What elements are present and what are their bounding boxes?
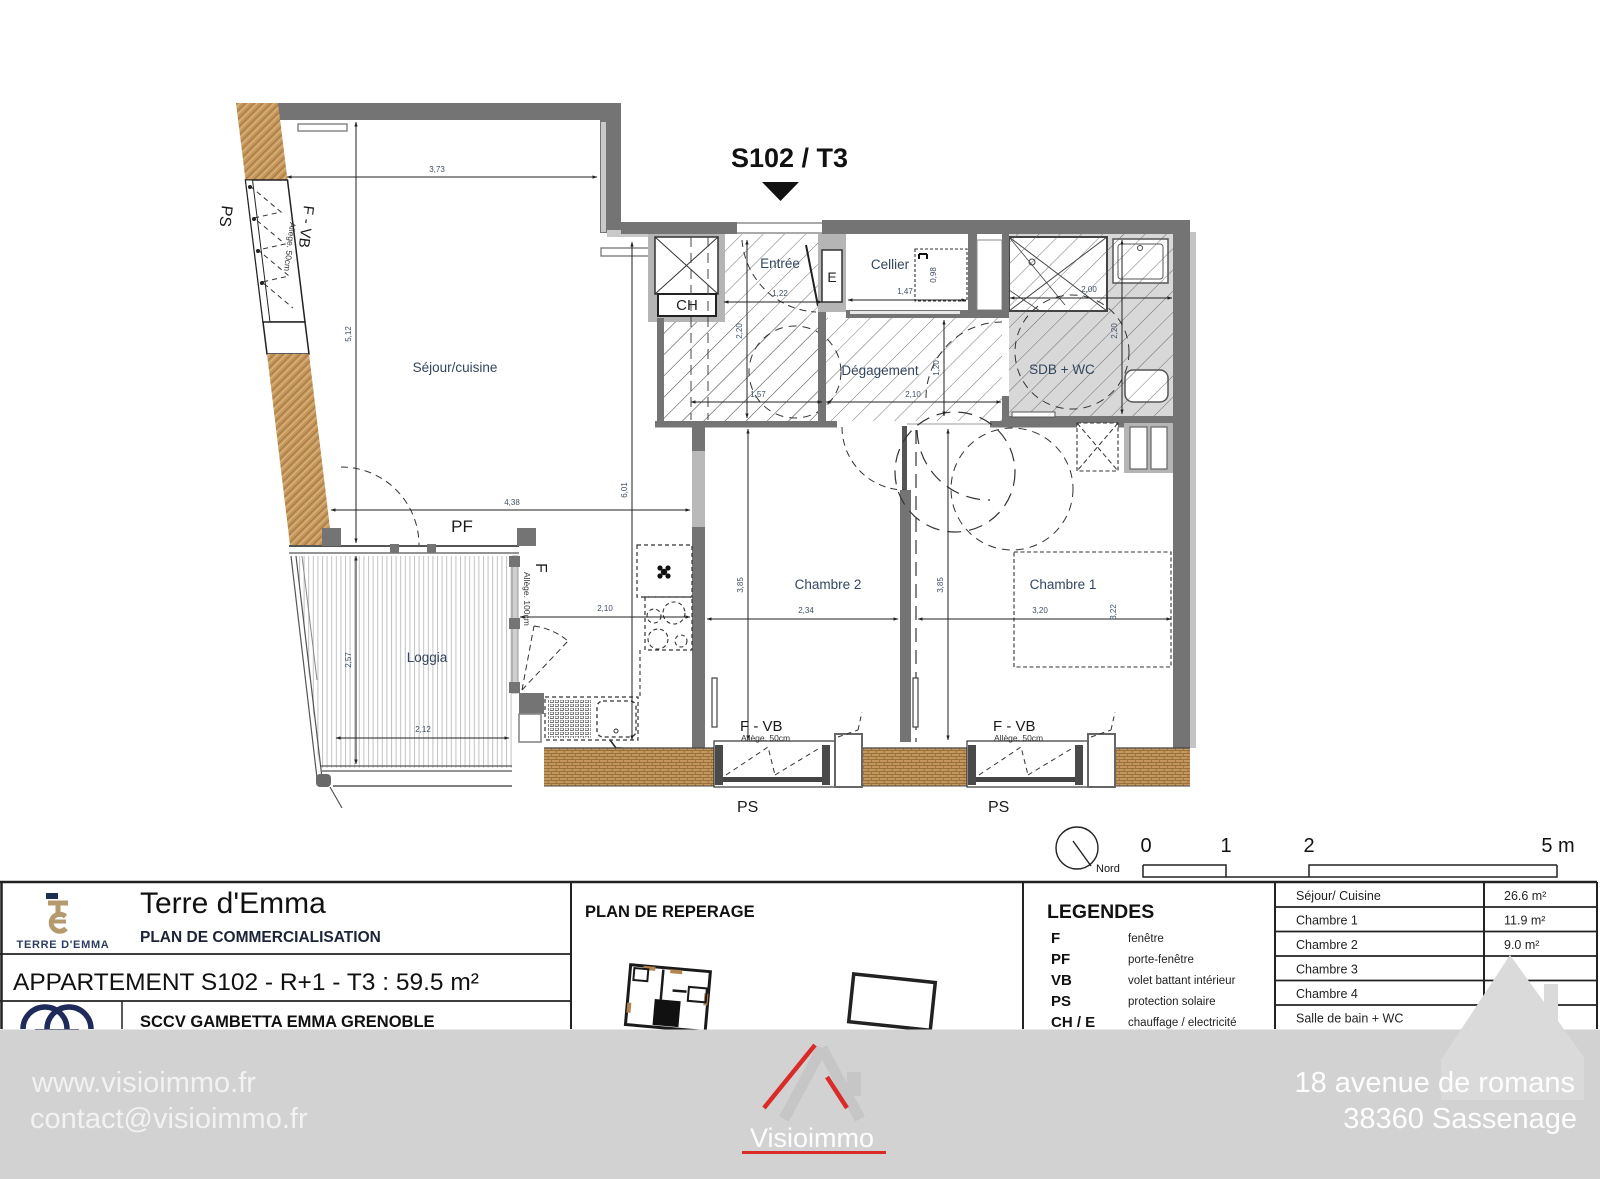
svg-text:2,00: 2,00 <box>1081 285 1097 294</box>
svg-text:Nord: Nord <box>1096 863 1120 875</box>
svg-text:1,20: 1,20 <box>932 360 941 376</box>
svg-text:Chambre 2: Chambre 2 <box>795 577 862 592</box>
svg-text:volet battant intérieur: volet battant intérieur <box>1128 975 1236 987</box>
svg-text:2,20: 2,20 <box>1110 323 1119 339</box>
svg-text:VB: VB <box>1051 972 1072 989</box>
svg-text:1,22: 1,22 <box>772 289 788 298</box>
svg-text:3,73: 3,73 <box>429 165 445 174</box>
svg-text:Terre d'Emma: Terre d'Emma <box>140 887 326 920</box>
svg-text:F: F <box>532 563 549 573</box>
svg-text:PLAN DE REPERAGE: PLAN DE REPERAGE <box>585 903 755 921</box>
svg-text:PF: PF <box>451 517 473 536</box>
svg-text:contact@visioimmo.fr: contact@visioimmo.fr <box>30 1103 308 1135</box>
svg-text:S102 / T3: S102 / T3 <box>731 143 848 173</box>
svg-text:Salle de bain + WC: Salle de bain + WC <box>1296 1012 1403 1026</box>
svg-text:0: 0 <box>1140 835 1151 857</box>
svg-text:1,57: 1,57 <box>750 390 766 399</box>
svg-text:PLAN DE COMMERCIALISATION: PLAN DE COMMERCIALISATION <box>140 929 381 946</box>
svg-text:Séjour/cuisine: Séjour/cuisine <box>413 360 498 375</box>
svg-text:Séjour/ Cuisine: Séjour/ Cuisine <box>1296 889 1381 903</box>
svg-text:Chambre 4: Chambre 4 <box>1296 987 1358 1001</box>
svg-text:fenêtre: fenêtre <box>1128 933 1164 945</box>
svg-text:F: F <box>1051 930 1060 947</box>
svg-text:PF: PF <box>1051 951 1070 968</box>
svg-text:CH / E: CH / E <box>1051 1014 1095 1031</box>
svg-text:5,12: 5,12 <box>344 326 353 342</box>
svg-text:Chambre 1: Chambre 1 <box>1296 914 1358 928</box>
svg-text:9.0 m²: 9.0 m² <box>1504 938 1539 952</box>
svg-text:1,47: 1,47 <box>897 287 913 296</box>
svg-text:0,98: 0,98 <box>929 267 938 283</box>
svg-text:2,10: 2,10 <box>905 390 921 399</box>
svg-text:2,57: 2,57 <box>344 652 353 668</box>
svg-text:PS: PS <box>1051 993 1071 1010</box>
svg-text:Allège. 50cm: Allège. 50cm <box>741 733 790 743</box>
svg-text:Chambre 2: Chambre 2 <box>1296 938 1358 952</box>
svg-text:1: 1 <box>1220 835 1231 857</box>
svg-text:PS: PS <box>215 205 234 228</box>
svg-text:3,20: 3,20 <box>1032 606 1048 615</box>
svg-text:Chambre 1: Chambre 1 <box>1030 577 1097 592</box>
svg-text:Visioimmo: Visioimmo <box>750 1123 874 1153</box>
svg-text:PS: PS <box>988 799 1009 816</box>
svg-text:E: E <box>827 269 836 285</box>
svg-text:Loggia: Loggia <box>407 650 448 665</box>
svg-text:porte-fenêtre: porte-fenêtre <box>1128 954 1194 966</box>
svg-text:5 m: 5 m <box>1541 835 1574 857</box>
svg-text:2,12: 2,12 <box>415 725 431 734</box>
svg-text:4,38: 4,38 <box>504 498 520 507</box>
svg-text:2,10: 2,10 <box>597 604 613 613</box>
svg-text:PS: PS <box>737 799 758 816</box>
svg-text:11.9 m²: 11.9 m² <box>1504 914 1545 928</box>
svg-text:26.6 m²: 26.6 m² <box>1504 889 1546 903</box>
svg-text:chauffage / electricité: chauffage / electricité <box>1128 1017 1236 1029</box>
svg-text:Chambre 3: Chambre 3 <box>1296 963 1358 977</box>
svg-text:CH: CH <box>676 297 698 314</box>
svg-text:2,20: 2,20 <box>735 323 744 339</box>
svg-text:3,22: 3,22 <box>1109 604 1118 620</box>
svg-text:3,85: 3,85 <box>936 577 945 593</box>
svg-text:Allège. 50cm: Allège. 50cm <box>994 733 1043 743</box>
svg-text:Dégagement: Dégagement <box>841 363 919 378</box>
svg-text:6,01: 6,01 <box>620 482 629 498</box>
svg-text:SDB + WC: SDB + WC <box>1029 362 1095 377</box>
svg-text:38360 Sassenage: 38360 Sassenage <box>1343 1103 1577 1135</box>
svg-text:3,85: 3,85 <box>736 577 745 593</box>
svg-text:2,34: 2,34 <box>798 606 814 615</box>
svg-text:APPARTEMENT S102 - R+1 - T3 :: APPARTEMENT S102 - R+1 - T3 : 59.5 m² <box>13 969 479 996</box>
svg-text:LEGENDES: LEGENDES <box>1047 901 1154 923</box>
svg-text:Entrée: Entrée <box>760 256 800 271</box>
svg-text:www.visioimmo.fr: www.visioimmo.fr <box>31 1067 256 1099</box>
svg-text:Cellier: Cellier <box>871 257 910 272</box>
svg-text:Allège. 100cm: Allège. 100cm <box>522 572 532 626</box>
svg-text:TERRE D'EMMA: TERRE D'EMMA <box>17 939 110 951</box>
svg-text:SCCV GAMBETTA EMMA GRENOBLE: SCCV GAMBETTA EMMA GRENOBLE <box>140 1013 435 1031</box>
svg-text:2: 2 <box>1303 835 1314 857</box>
svg-text:18 avenue de romans: 18 avenue de romans <box>1294 1067 1575 1099</box>
svg-text:protection solaire: protection solaire <box>1128 996 1216 1008</box>
